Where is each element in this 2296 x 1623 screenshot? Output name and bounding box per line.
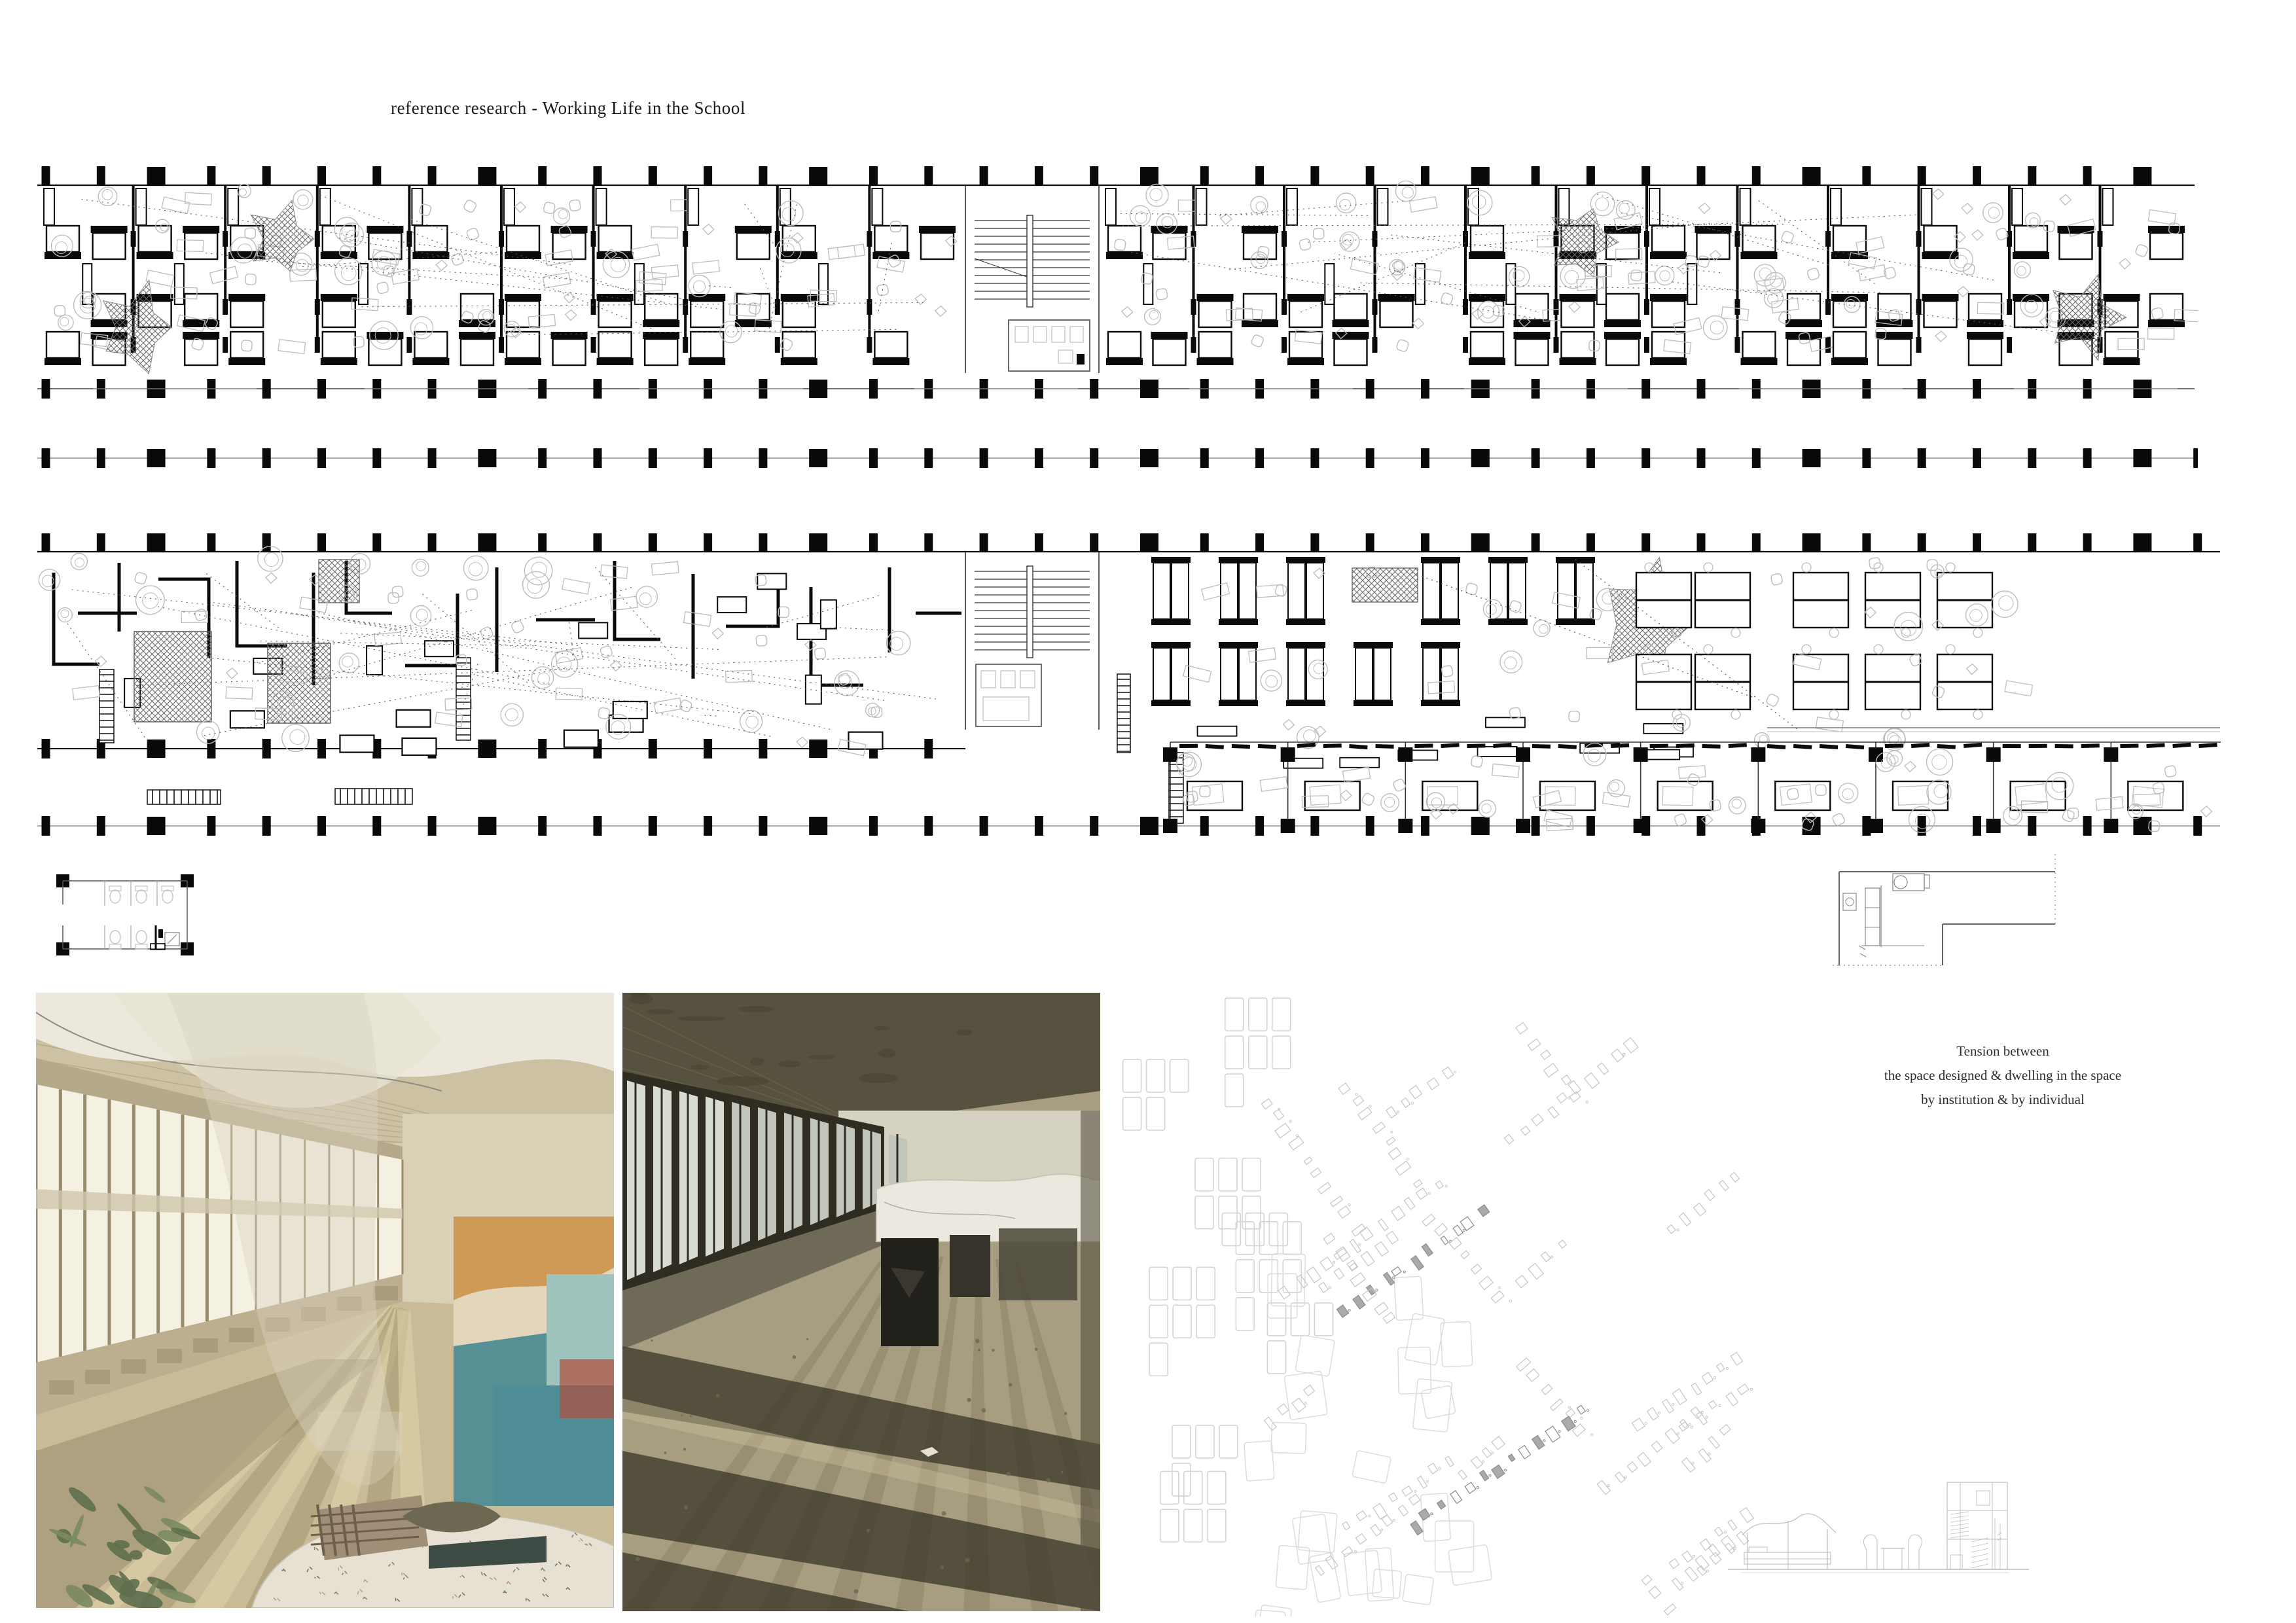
elevation-sketch bbox=[1728, 1472, 2036, 1580]
caption-line-3: by institution & by individual bbox=[1741, 1088, 2265, 1112]
toilet-plan-detail bbox=[52, 870, 203, 962]
l-room-plan-detail bbox=[1833, 847, 2068, 972]
caption-line-1: Tension between bbox=[1741, 1039, 2265, 1063]
caption-line-2: the space designed & dwelling in the spa… bbox=[1741, 1063, 2265, 1088]
floor-plan-upper bbox=[37, 160, 2198, 471]
page-title: reference research - Working Life in the… bbox=[391, 98, 745, 118]
tension-caption: Tension between the space designed & dwe… bbox=[1741, 1039, 2265, 1112]
photo-corridor bbox=[622, 993, 1100, 1611]
photo-interior-collage bbox=[36, 993, 614, 1608]
floor-plan-lower bbox=[37, 533, 2221, 841]
presentation-board: reference research - Working Life in the… bbox=[0, 0, 2296, 1623]
furniture-scatter-drawing bbox=[1121, 997, 1760, 1616]
